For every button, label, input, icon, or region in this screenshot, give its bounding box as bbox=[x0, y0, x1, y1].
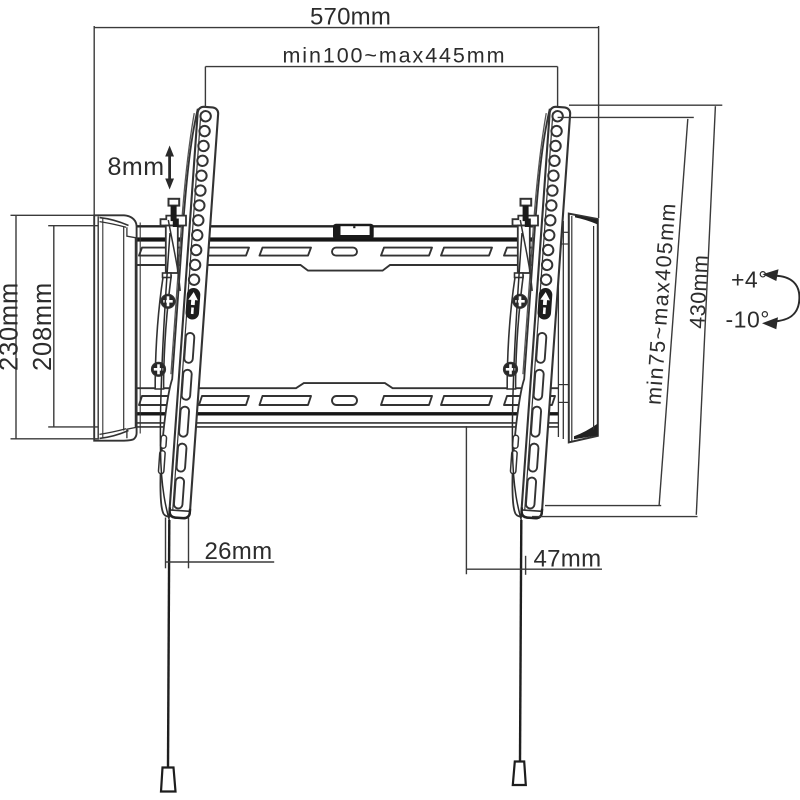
svg-text:47mm: 47mm bbox=[534, 546, 602, 573]
svg-text:26mm: 26mm bbox=[205, 538, 273, 565]
svg-text:230mm: 230mm bbox=[0, 282, 24, 371]
svg-text:208mm: 208mm bbox=[29, 282, 57, 371]
svg-text:570mm: 570mm bbox=[310, 4, 391, 31]
svg-text:8mm: 8mm bbox=[108, 153, 165, 181]
svg-text:+4°: +4° bbox=[731, 267, 768, 293]
svg-text:430mm: 430mm bbox=[685, 254, 712, 329]
svg-text:-10°: -10° bbox=[726, 307, 770, 333]
svg-text:min100~max445mm: min100~max445mm bbox=[283, 43, 507, 67]
